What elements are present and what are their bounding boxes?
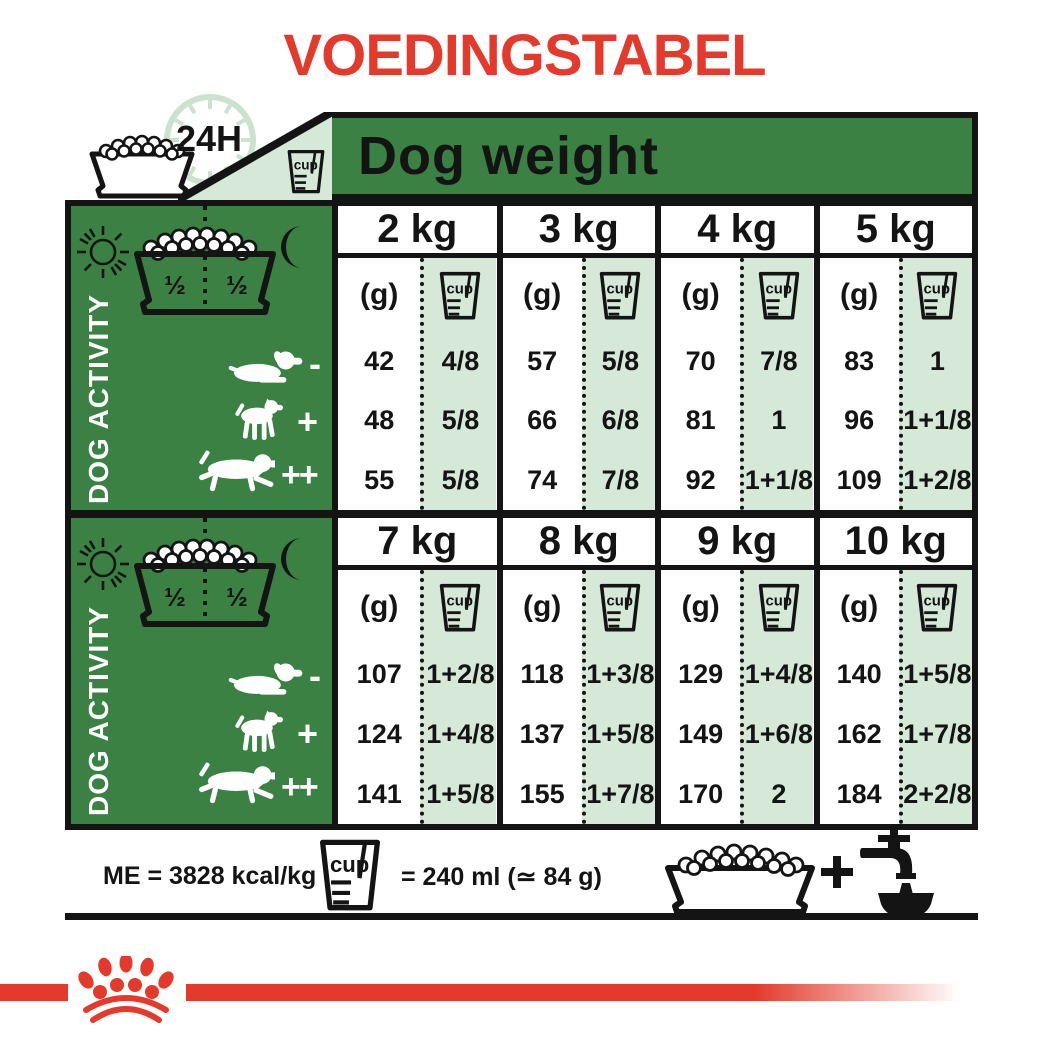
dog-high-activity-icon	[199, 448, 275, 494]
grams-value: 184	[820, 764, 899, 824]
half-label: ½	[226, 582, 248, 612]
weight-header: 10 kg	[820, 518, 973, 570]
svg-text:cup: cup	[765, 282, 791, 298]
dog-medium-activity-icon	[235, 394, 283, 446]
grams-value: 107	[338, 644, 420, 704]
grams-unit: (g)	[820, 258, 899, 332]
dog-activity-panel: ½ ½ DOG ACTIVITY -	[71, 206, 338, 510]
grams-value: 140	[820, 644, 899, 704]
weight-column-7kg: 7 kg (g) 107 124 141 cup 1+2/8 1+4/8 1	[338, 518, 497, 824]
measuring-cup-icon: cup	[286, 146, 326, 196]
half-label: ½	[164, 582, 186, 612]
half-portion-bowl-icon: ½ ½	[127, 206, 283, 334]
half-label: ½	[226, 270, 248, 300]
cup-label: cup	[330, 852, 369, 877]
cup-value: 1+4/8	[744, 644, 813, 704]
feeding-table: ½ ½ DOG ACTIVITY -	[65, 200, 978, 830]
svg-text:cup: cup	[447, 594, 473, 610]
weight-header: 9 kg	[661, 518, 814, 570]
cup-value: 1+2/8	[424, 644, 496, 704]
cup-equivalence-label: = 240 ml (≃ 84 g)	[401, 862, 602, 892]
half-label: ½	[164, 270, 186, 300]
feeding-table-page: VOEDINGSTABEL 24H	[0, 0, 1049, 1049]
weight-column-10kg: 10 kg (g) 140 162 184 cup 1+5/8 1+7/8	[814, 518, 973, 824]
cup-value: 1+5/8	[586, 704, 655, 764]
svg-text:cup: cup	[765, 594, 791, 610]
measuring-cup-icon: cup	[598, 579, 642, 635]
weight-header: 8 kg	[503, 518, 656, 570]
grams-value: 57	[503, 332, 582, 391]
cup-value: 2+2/8	[903, 764, 972, 824]
measuring-cup-icon: cup	[915, 267, 959, 323]
plus-icon	[821, 856, 853, 888]
dog-weight-header: Dog weight	[332, 112, 978, 200]
moon-icon	[281, 226, 308, 268]
grams-value: 155	[503, 764, 582, 824]
dog-low-activity-icon	[227, 346, 303, 386]
dog-high-activity-icon	[199, 760, 275, 806]
half-portion-bowl-icon: ½ ½	[127, 518, 283, 646]
measuring-cup-icon: cup	[757, 267, 801, 323]
svg-text:cup: cup	[924, 594, 950, 610]
measuring-cup-icon: cup	[312, 834, 388, 914]
grams-value: 55	[338, 451, 420, 510]
weight-columns-1: 2 kg (g) 42 48 55 cup 4/8 5/8 5/8	[338, 206, 972, 510]
cup-value: 5/8	[424, 391, 496, 450]
grams-value: 124	[338, 704, 420, 764]
grams-unit: (g)	[338, 570, 420, 644]
measuring-cup-icon: cup	[598, 267, 642, 323]
sun-icon	[75, 536, 131, 592]
footer-strip: ME = 3828 kcal/kg cup = 240 ml (≃ 84 g)	[65, 830, 978, 920]
cup-value: 1	[744, 391, 813, 450]
weight-header: 3 kg	[503, 206, 656, 258]
dog-medium-activity-icon	[235, 706, 283, 758]
section-1: ½ ½ DOG ACTIVITY -	[65, 200, 978, 510]
cup-value: 1+1/8	[744, 451, 813, 510]
weight-header: 2 kg	[338, 206, 497, 258]
cup-value: 7/8	[744, 332, 813, 391]
grams-value: 74	[503, 451, 582, 510]
cup-value: 1+1/8	[903, 391, 972, 450]
cup-value: 1+5/8	[903, 644, 972, 704]
kibble-bowl-icon	[660, 838, 820, 916]
grams-value: 137	[503, 704, 582, 764]
cup-value: 1+3/8	[586, 644, 655, 704]
cup-value: 6/8	[586, 391, 655, 450]
dog-activity-panel: ½ ½ DOG ACTIVITY -	[71, 518, 338, 824]
cup-value: 1+5/8	[424, 764, 496, 824]
cup-value: 1+7/8	[586, 764, 655, 824]
grams-value: 81	[661, 391, 740, 450]
cup-value: 1	[903, 332, 972, 391]
weight-column-4kg: 4 kg (g) 70 81 92 cup 7/8 1 1+1/8	[655, 206, 814, 510]
activity-level-high: ++	[281, 770, 317, 804]
grams-unit: (g)	[503, 570, 582, 644]
grams-value: 96	[820, 391, 899, 450]
activity-level-low: -	[309, 658, 321, 694]
svg-text:cup: cup	[607, 282, 633, 298]
grams-value: 129	[661, 644, 740, 704]
section-2: ½ ½ DOG ACTIVITY -	[65, 518, 978, 830]
water-faucet-icon	[860, 830, 936, 920]
section-divider	[65, 510, 978, 518]
weight-header: 7 kg	[338, 518, 497, 570]
cup-value: 5/8	[586, 332, 655, 391]
grams-unit: (g)	[338, 258, 420, 332]
grams-value: 48	[338, 391, 420, 450]
grams-unit: (g)	[503, 258, 582, 332]
grams-value: 42	[338, 332, 420, 391]
measuring-cup-icon: cup	[757, 579, 801, 635]
measuring-cup-icon: cup	[915, 579, 959, 635]
cup-value: 2	[744, 764, 813, 824]
svg-text:cup: cup	[447, 282, 473, 298]
sun-icon	[75, 224, 131, 280]
svg-text:cup: cup	[607, 594, 633, 610]
grams-value: 66	[503, 391, 582, 450]
weight-header: 4 kg	[661, 206, 814, 258]
dog-activity-label: DOG ACTIVITY	[83, 292, 115, 504]
activity-level-medium: +	[297, 716, 318, 752]
weight-column-3kg: 3 kg (g) 57 66 74 cup 5/8 6/8 7/8	[497, 206, 656, 510]
dog-low-activity-icon	[227, 658, 303, 698]
grams-unit: (g)	[661, 258, 740, 332]
metabolizable-energy-label: ME = 3828 kcal/kg	[103, 862, 316, 891]
weight-column-9kg: 9 kg (g) 129 149 170 cup 1+4/8 1+6/8 2	[655, 518, 814, 824]
cup-value: 4/8	[424, 332, 496, 391]
weight-columns-2: 7 kg (g) 107 124 141 cup 1+2/8 1+4/8 1	[338, 518, 972, 824]
svg-text:cup: cup	[924, 282, 950, 298]
dog-activity-label: DOG ACTIVITY	[83, 604, 115, 816]
cup-value: 7/8	[586, 451, 655, 510]
activity-level-high: ++	[281, 458, 317, 492]
grams-value: 70	[661, 332, 740, 391]
brand-band-right	[186, 984, 976, 1001]
grams-value: 170	[661, 764, 740, 824]
moon-icon	[281, 538, 308, 580]
cup-label: cup	[294, 158, 318, 173]
grams-value: 141	[338, 764, 420, 824]
grams-value: 83	[820, 332, 899, 391]
activity-level-low: -	[309, 346, 321, 382]
weight-column-5kg: 5 kg (g) 83 96 109 cup 1 1+1/8 1+2/8	[814, 206, 973, 510]
grams-unit: (g)	[820, 570, 899, 644]
grams-value: 92	[661, 451, 740, 510]
cup-value: 1+7/8	[903, 704, 972, 764]
brand-band-left	[0, 984, 68, 1001]
cup-value: 1+4/8	[424, 704, 496, 764]
crown-logo	[74, 956, 178, 1026]
cup-value: 1+2/8	[903, 451, 972, 510]
measuring-cup-icon: cup	[438, 579, 482, 635]
page-title: VOEDINGSTABEL	[0, 22, 1049, 89]
weight-column-8kg: 8 kg (g) 118 137 155 cup 1+3/8 1+5/8 1	[497, 518, 656, 824]
weight-column-2kg: 2 kg (g) 42 48 55 cup 4/8 5/8 5/8	[338, 206, 497, 510]
weight-header: 5 kg	[820, 206, 973, 258]
grams-unit: (g)	[661, 570, 740, 644]
grams-value: 149	[661, 704, 740, 764]
cup-value: 1+6/8	[744, 704, 813, 764]
measuring-cup-icon: cup	[438, 267, 482, 323]
cup-value: 5/8	[424, 451, 496, 510]
activity-level-medium: +	[297, 404, 318, 440]
grams-value: 118	[503, 644, 582, 704]
grams-value: 109	[820, 451, 899, 510]
grams-value: 162	[820, 704, 899, 764]
